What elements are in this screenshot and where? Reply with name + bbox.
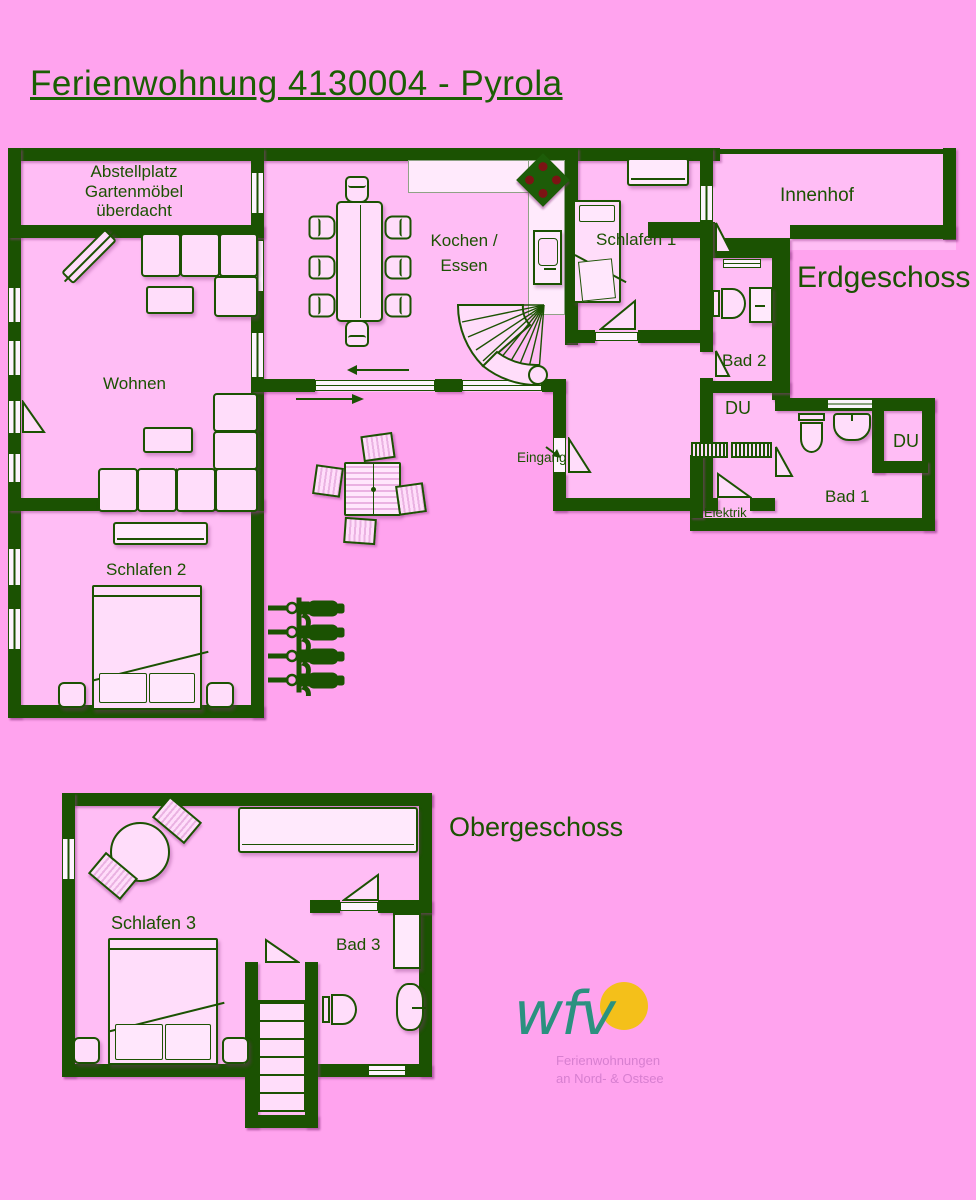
logo-tagline: Ferienwohnungen an Nord- & Ostsee: [556, 1052, 664, 1088]
wall-innenhof-bottom: [790, 225, 956, 239]
wohnen-window-1: [8, 287, 21, 323]
dining-chair: [385, 216, 412, 240]
slider-arrow-right-icon: [294, 393, 366, 405]
slider-window-1: [315, 380, 435, 391]
garden-taps-icon: [268, 596, 356, 696]
wall-bad2-du: [713, 381, 790, 393]
dining-chair: [345, 176, 369, 203]
kitchen-sink-icon: [533, 230, 562, 285]
wall-stair-right: [305, 962, 318, 1128]
garden-table: [344, 462, 401, 516]
wall-annex-left: [690, 455, 703, 518]
nightstand: [73, 1037, 100, 1064]
sofa-cell: [213, 431, 258, 470]
bad1-window: [827, 399, 873, 409]
stair-door-swing: [264, 938, 300, 964]
bed-schlafen1: [573, 200, 621, 303]
floorplan-page: Ferienwohnung 4130004 - Pyrola: [0, 0, 976, 1200]
garden-chair: [343, 517, 377, 545]
sofa-cell: [180, 233, 220, 277]
wall-top: [8, 148, 720, 161]
room-label-bad1: Bad 1: [825, 487, 869, 507]
abstellplatz-door: [251, 172, 264, 214]
wall-og-left: [62, 793, 75, 1077]
staircase-icon: [258, 1000, 306, 1112]
dining-chair: [385, 294, 412, 318]
wall-du2-bottom: [872, 461, 928, 473]
dining-chair: [345, 320, 369, 347]
schlafen2-window-1: [8, 548, 21, 586]
wohnen-window-2: [8, 340, 21, 376]
radiator-icon: [731, 442, 772, 458]
nightstand: [206, 682, 234, 708]
bad3-door-swing: [342, 873, 380, 902]
floor-label-obergeschoss: Obergeschoss: [449, 812, 623, 843]
bad3-window: [368, 1065, 406, 1076]
wohnen-kitchen-glass-2: [251, 332, 264, 378]
garden-chair: [312, 464, 344, 498]
garden-chair: [360, 432, 395, 462]
sofa-cell: [215, 468, 258, 512]
slider-arrow-left-icon: [345, 364, 411, 376]
wall-x700-b: [700, 221, 713, 352]
dining-chair: [309, 256, 336, 280]
dining-chair: [309, 294, 336, 318]
spiral-staircase-icon: [450, 295, 552, 391]
sink-bad3-icon: [396, 983, 424, 1031]
og-window-left: [62, 838, 75, 880]
kitchen-counter-top: [408, 160, 530, 193]
room-label-schlafen3: Schlafen 3: [111, 913, 196, 934]
page-title: Ferienwohnung 4130004 - Pyrola: [30, 64, 563, 104]
room-label-bad2: Bad 2: [722, 351, 766, 371]
bad1-door-swing: [774, 445, 795, 478]
dining-table: [336, 201, 383, 322]
floor-label-erdgeschoss: Erdgeschoss: [797, 261, 970, 296]
wall-stair-bottom: [245, 1115, 318, 1128]
innenhof-door-swing: [714, 221, 734, 254]
wall-elektrik-right: [750, 498, 775, 511]
room-label-bad3: Bad 3: [336, 935, 380, 955]
wall-schlafen1-bottom-a: [565, 330, 595, 343]
dining-chair: [309, 216, 336, 240]
elektrik-door-swing: [716, 472, 752, 499]
wall-kitchen-bottom-a: [251, 379, 315, 392]
wardrobe: [627, 158, 689, 186]
schlafen1-innenhof-window: [700, 185, 713, 221]
bad2-window: [723, 259, 761, 268]
shower-bad3-icon: [393, 913, 421, 969]
nightstand: [222, 1037, 249, 1064]
innenhof-fence: [713, 149, 956, 154]
sofa-cell: [137, 468, 177, 512]
bed-schlafen2: [92, 585, 202, 710]
sofa-cell: [176, 468, 216, 512]
schlafen1-door-swing: [599, 299, 637, 331]
entrance-door-swing: [567, 437, 593, 474]
schlafen2-window-2: [8, 608, 21, 650]
room-label-schlafen2: Schlafen 2: [106, 560, 186, 580]
sink-bad1-icon: [833, 413, 871, 441]
room-label-wohnen: Wohnen: [103, 374, 166, 394]
wall-column-right: [772, 250, 790, 400]
sofa-cell: [219, 233, 258, 277]
room-label-schlafen1: Schlafen 1: [596, 230, 676, 250]
schlafen1-door: [595, 332, 638, 341]
wall-bad3-top-a: [310, 900, 340, 913]
room-label-elektrik: Elektrik: [704, 506, 747, 521]
wall-bad3-top-b: [378, 900, 432, 913]
wardrobe: [113, 522, 208, 545]
sofa-cell: [141, 233, 181, 277]
sofa-cell: [213, 393, 258, 432]
bed-schlafen3: [108, 938, 218, 1065]
room-label-du-bad1: DU: [893, 431, 919, 452]
room-label-abstellplatz: Abstellplatz Gartenmöbel überdacht: [20, 162, 248, 221]
sofa-cell: [214, 276, 258, 317]
wall-x700-a: [700, 148, 713, 185]
radiator-icon: [691, 442, 728, 458]
label-eingang: Eingang: [517, 450, 567, 466]
room-label-kochen-essen: Kochen / Essen: [413, 229, 515, 278]
bad3-door: [340, 902, 378, 911]
wall-og-top: [62, 793, 432, 806]
wohnen-window-4: [8, 453, 21, 483]
nightstand: [58, 682, 86, 708]
garden-chair: [395, 482, 427, 516]
sofa-cell: [98, 468, 138, 512]
wohnen-window-3: [8, 400, 21, 434]
area-label-innenhof: Innenhof: [780, 185, 854, 207]
left-door-swing: [21, 400, 47, 434]
coffee-table-1: [146, 286, 194, 314]
logo-text: wfv: [514, 980, 614, 1049]
coffee-table-2: [143, 427, 193, 453]
room-label-du-mitte: DU: [725, 398, 751, 419]
wardrobe: [238, 807, 418, 853]
shower-bad2-icon: [749, 287, 773, 323]
wall-corridor-left-a: [553, 379, 566, 437]
dining-chair: [385, 256, 412, 280]
